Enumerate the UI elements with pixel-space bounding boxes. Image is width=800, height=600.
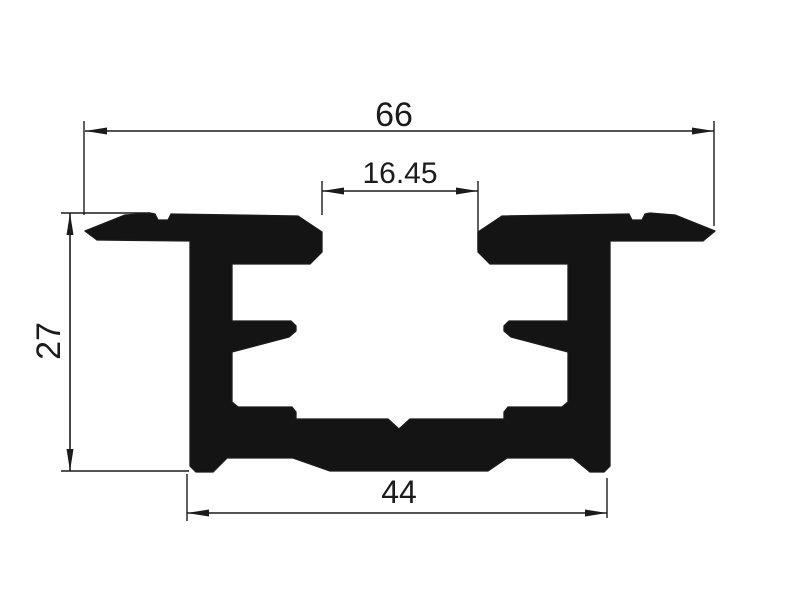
dimension-slot-width: 16.45	[322, 157, 478, 250]
drawing-page: 66 16.45 27 44	[0, 0, 800, 600]
drawing-canvas: 66 16.45 27 44	[0, 0, 800, 600]
arrowhead	[187, 510, 209, 517]
arrowhead	[322, 188, 344, 195]
arrowhead	[67, 449, 74, 471]
arrowhead	[692, 128, 714, 135]
arrowhead	[67, 213, 74, 235]
dimension-label-base-width: 44	[381, 474, 417, 510]
arrowhead	[85, 128, 107, 135]
dimension-label-height: 27	[30, 322, 68, 360]
arrowhead	[585, 510, 607, 517]
dimension-label-slot-width: 16.45	[362, 157, 437, 190]
arrowhead	[456, 188, 478, 195]
dimension-label-top-width: 66	[375, 96, 413, 134]
profile-cross-section	[85, 213, 715, 472]
dimension-base-width: 44	[187, 474, 607, 521]
dimension-height: 27	[30, 213, 189, 471]
